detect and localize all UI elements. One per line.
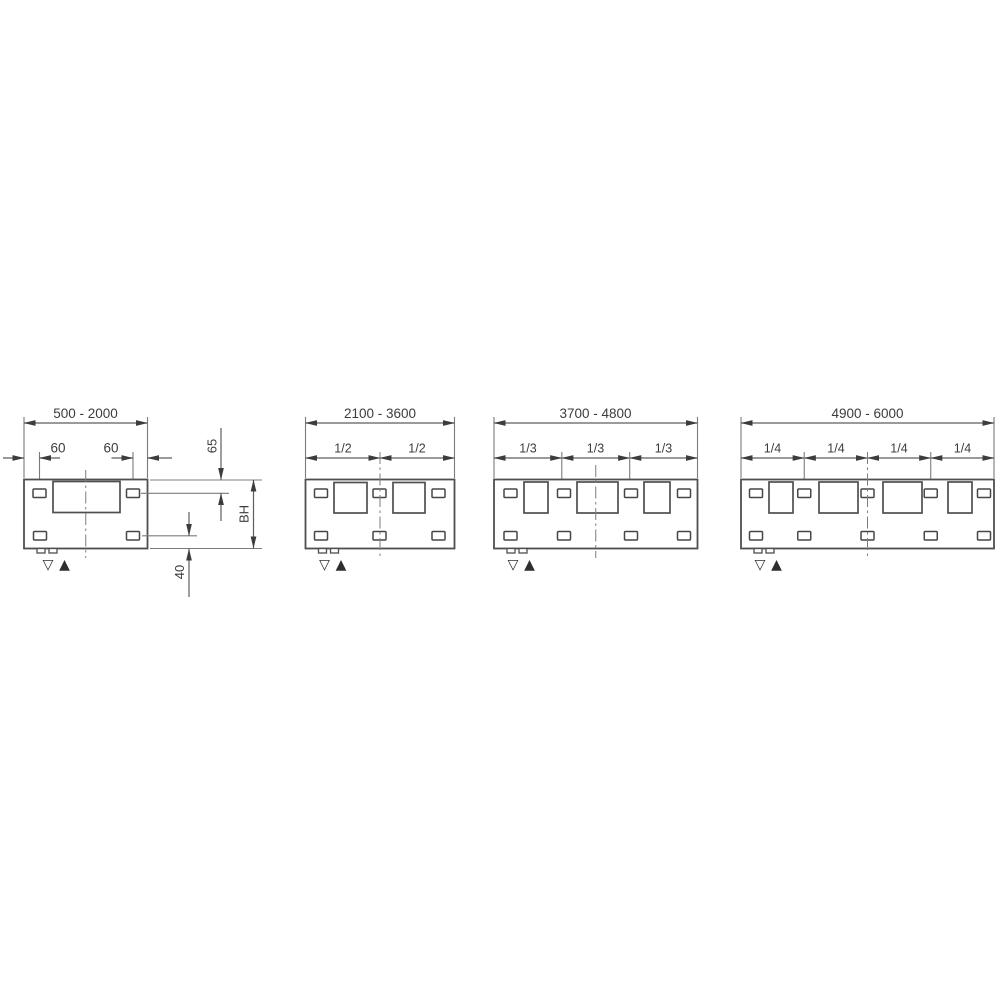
mounting-slot	[798, 532, 811, 541]
fraction-label: 1/3	[519, 442, 536, 456]
mounting-slot	[558, 489, 571, 498]
filled-triangle-icon: ▲	[59, 557, 70, 573]
fixing-tab	[49, 549, 57, 554]
mounting-slot	[750, 489, 763, 498]
fixing-tab	[519, 549, 527, 554]
mounting-slot	[678, 532, 691, 541]
width-range-label: 2100 - 3600	[344, 406, 416, 421]
cutout	[769, 482, 793, 513]
fraction-label: 1/2	[334, 442, 351, 456]
panel-variant-2: 2100 - 3600 1/2 1/2 ▽ ▲	[306, 406, 455, 573]
fraction-label: 1/4	[827, 442, 844, 456]
fraction-label: 1/4	[764, 442, 781, 456]
width-range-label: 3700 - 4800	[559, 406, 631, 421]
panel-variant-1: 500 - 2000 60 60 ▽ ▲ 65 BH 40	[3, 406, 262, 597]
mounting-slot	[978, 489, 991, 498]
cutout	[819, 482, 858, 513]
mounting-slot	[504, 532, 517, 541]
panel-variant-4: 4900 - 6000 1/4 1/4 1/4 1/4 ▽ ▲	[741, 406, 994, 573]
mounting-slot	[750, 532, 763, 541]
mounting-slot	[625, 532, 638, 541]
filled-triangle-icon: ▲	[524, 557, 535, 573]
cutout	[393, 483, 425, 514]
fraction-label: 1/4	[954, 442, 971, 456]
fraction-label: 1/3	[655, 442, 672, 456]
mounting-slot	[924, 489, 937, 498]
panel-height-label: BH	[237, 505, 252, 523]
mounting-slot	[33, 489, 46, 498]
fixing-tab	[331, 549, 339, 554]
fixing-tab	[319, 549, 327, 554]
mounting-slot	[798, 489, 811, 498]
mounting-slot	[558, 532, 571, 541]
cutout	[948, 482, 972, 513]
panel-variant-3: 3700 - 4800 1/3 1/3 1/3 ▽ ▲	[494, 406, 698, 573]
mounting-slot	[127, 532, 140, 541]
cutout	[577, 482, 618, 513]
mounting-slot	[924, 532, 937, 541]
filled-triangle-icon: ▲	[771, 557, 782, 573]
cutout	[524, 482, 548, 513]
mounting-slot	[34, 532, 47, 541]
mounting-slot	[127, 489, 140, 498]
mounting-slot	[504, 489, 517, 498]
mounting-slot	[678, 489, 691, 498]
cutout	[53, 482, 120, 513]
top-offset-label: 65	[205, 439, 220, 453]
filled-triangle-icon: ▲	[336, 557, 347, 573]
fixing-tab	[37, 549, 45, 554]
open-triangle-icon: ▽	[319, 557, 330, 573]
fraction-label: 1/4	[890, 442, 907, 456]
mounting-slot	[978, 532, 991, 541]
fraction-label: 1/3	[587, 442, 604, 456]
mounting-slot	[315, 489, 328, 498]
mounting-slot	[315, 532, 328, 541]
open-triangle-icon: ▽	[755, 557, 766, 573]
fixing-tab	[766, 549, 774, 554]
mounting-slot	[432, 532, 445, 541]
cutout	[883, 482, 922, 513]
offset-left-label: 60	[50, 441, 65, 456]
mounting-dimension-diagram: 500 - 2000 60 60 ▽ ▲ 65 BH 40	[0, 0, 1000, 1000]
mounting-slot	[625, 489, 638, 498]
open-triangle-icon: ▽	[43, 557, 54, 573]
open-triangle-icon: ▽	[508, 557, 519, 573]
cutout	[334, 483, 367, 514]
offset-right-label: 60	[103, 441, 118, 456]
width-range-label: 500 - 2000	[53, 406, 118, 421]
fraction-label: 1/2	[408, 442, 425, 456]
width-range-label: 4900 - 6000	[831, 406, 903, 421]
screenshot-canvas: 500 - 2000 60 60 ▽ ▲ 65 BH 40	[0, 0, 1000, 1000]
fixing-tab	[754, 549, 762, 554]
mounting-slot	[432, 489, 445, 498]
bottom-offset-label: 40	[172, 565, 187, 579]
fixing-tab	[507, 549, 515, 554]
cutout	[644, 482, 670, 513]
